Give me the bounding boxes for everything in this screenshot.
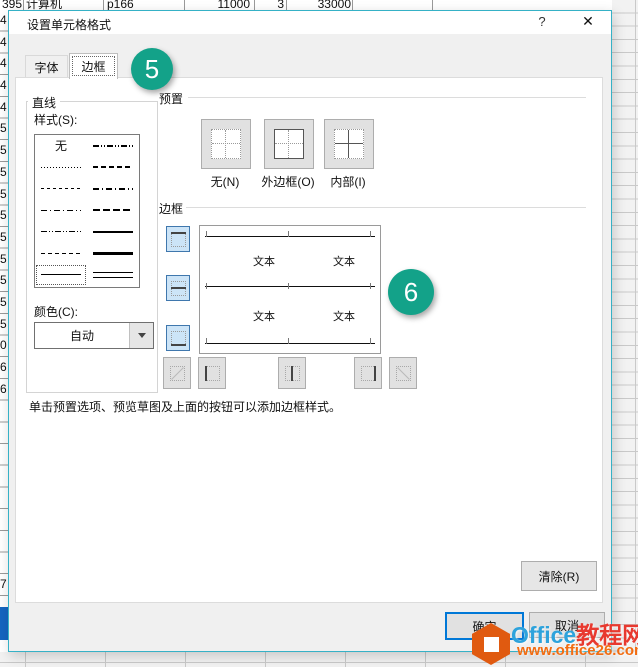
preview-border-line [205, 286, 375, 287]
cell-digit: 5 [0, 184, 7, 206]
cell-digit: 4 [0, 32, 7, 54]
line-style-option-selected[interactable] [35, 264, 87, 286]
tab-border[interactable]: 边框 [69, 53, 118, 79]
border-top-toggle[interactable] [166, 226, 190, 252]
cell-digit: 6 [0, 379, 7, 401]
gridline [345, 652, 346, 667]
preset-inside-icon [334, 129, 364, 159]
gridline [0, 662, 638, 663]
line-sample [41, 231, 81, 232]
cell-digit: 5 [0, 292, 7, 314]
cell-digit [0, 444, 7, 466]
gridline [105, 652, 106, 667]
cell-value: p166 [107, 0, 134, 10]
anchor-tick [206, 338, 207, 344]
border-diagonal-down-button[interactable] [389, 357, 417, 389]
line-style-option[interactable] [87, 264, 139, 286]
line-sample [93, 145, 133, 147]
line-sample [93, 231, 133, 233]
line-style-option[interactable] [35, 157, 87, 179]
gridline [265, 652, 266, 667]
line-sample [93, 209, 133, 211]
group-separator [188, 97, 586, 98]
preset-outline-label: 外边框(O) [255, 173, 321, 190]
border-middle-icon [171, 281, 186, 296]
line-sample [93, 272, 133, 278]
line-style-label: 样式(S): [34, 111, 77, 128]
line-style-option[interactable] [35, 243, 87, 265]
anchor-tick [206, 283, 207, 289]
line-sample [41, 210, 81, 211]
cell-value: 395 [0, 0, 22, 10]
cell-digit [0, 531, 7, 553]
preset-none-label: 无(N) [192, 173, 258, 190]
annotation-step-6-badge: 6 [388, 269, 434, 315]
line-style-option[interactable] [87, 243, 139, 265]
anchor-tick [288, 283, 289, 289]
gridline [103, 0, 104, 10]
line-group-title: 直线 [28, 94, 60, 111]
preset-inside-button[interactable] [324, 119, 374, 169]
clear-button[interactable]: 清除(R) [521, 561, 597, 591]
dropdown-button[interactable] [129, 323, 153, 348]
cell-digit: 4 [0, 75, 7, 97]
cell-value: 计算机 [26, 0, 62, 10]
cell-digit [0, 509, 7, 531]
cell-digit: 5 [0, 118, 7, 140]
cell-digit: 0 [0, 335, 7, 357]
cell-digit [0, 552, 7, 574]
line-sample [93, 188, 133, 190]
preview-text: 文本 [244, 308, 284, 324]
gridline [185, 652, 186, 667]
line-style-option[interactable] [35, 221, 87, 243]
cell-digit [0, 400, 7, 422]
cell-value: 33000 [288, 0, 351, 10]
preview-text: 文本 [324, 253, 364, 269]
gridline [184, 0, 185, 10]
anchor-tick [288, 231, 289, 237]
preset-none-button[interactable] [201, 119, 251, 169]
cell-digit: 5 [0, 140, 7, 162]
line-style-option[interactable] [35, 178, 87, 200]
line-style-option[interactable] [87, 135, 139, 157]
line-style-listbox[interactable]: 无 [34, 134, 140, 288]
anchor-tick [370, 338, 371, 344]
cell-digit: 5 [0, 205, 7, 227]
border-diagonal-up-button[interactable] [163, 357, 191, 389]
preview-text: 文本 [324, 308, 364, 324]
selected-cells-block [0, 607, 8, 640]
line-style-option-none[interactable]: 无 [35, 135, 87, 157]
line-style-option[interactable] [35, 200, 87, 222]
preview-border-line [205, 343, 375, 344]
tab-font[interactable]: 字体 [25, 55, 68, 79]
cell-digit [0, 487, 7, 509]
help-button[interactable]: ? [531, 14, 553, 32]
line-style-option[interactable] [87, 221, 139, 243]
hint-text: 单击预置选项、预览草图及上面的按钮可以添加边框样式。 [29, 398, 341, 415]
spreadsheet-left-strip: 4 4 4 4 4 5 5 5 5 5 5 5 5 5 5 0 6 6 7 [0, 10, 8, 652]
color-dropdown-value: 自动 [35, 323, 129, 348]
dialog-titlebar[interactable]: 设置单元格格式 ? ✕ [9, 11, 611, 34]
format-cells-dialog: 设置单元格格式 ? ✕ 字体 边框 直线 样式(S): 无 [8, 10, 612, 652]
preset-outline-icon [274, 129, 304, 159]
line-sample [93, 252, 133, 255]
group-separator [186, 207, 586, 208]
border-tab-page: 直线 样式(S): 无 [15, 77, 603, 603]
border-right-button[interactable] [354, 357, 382, 389]
gridline [352, 0, 353, 10]
cell-digit [0, 465, 7, 487]
line-sample [41, 253, 81, 254]
gridline [425, 652, 426, 667]
preview-border-line [205, 236, 375, 237]
diagonal-up-icon [170, 366, 185, 381]
left-cell-digits: 4 4 4 4 4 5 5 5 5 5 5 5 5 5 5 0 6 6 7 [0, 10, 7, 617]
border-middle-toggle[interactable] [166, 275, 190, 301]
annotation-step-5-badge: 5 [131, 48, 173, 90]
cell-digit: 5 [0, 270, 7, 292]
border-bottom-icon [171, 331, 186, 346]
line-style-option[interactable] [87, 178, 139, 200]
line-sample [41, 274, 81, 275]
preset-outline-button[interactable] [264, 119, 314, 169]
cell-digit [0, 422, 7, 444]
border-left-button[interactable] [198, 357, 226, 389]
cell-value: 3 [258, 0, 284, 10]
gridline [25, 652, 26, 667]
line-sample [41, 188, 81, 189]
border-preview[interactable]: 文本 文本 文本 文本 [199, 225, 381, 354]
anchor-tick [370, 231, 371, 237]
preset-inside-label: 内部(I) [315, 173, 381, 190]
line-style-option[interactable] [87, 157, 139, 179]
border-inner-vertical-button[interactable] [278, 357, 306, 389]
spreadsheet-top-row: 395 计算机 p166 11000 3 33000 [0, 0, 638, 10]
cell-digit: 5 [0, 249, 7, 271]
border-bottom-toggle[interactable] [166, 325, 190, 351]
anchor-tick [370, 283, 371, 289]
cell-digit: 5 [0, 227, 7, 249]
presets-group-title: 预置 [159, 90, 183, 107]
cell-digit: 7 [0, 574, 7, 596]
close-icon[interactable]: ✕ [575, 13, 601, 33]
cell-digit: 4 [0, 10, 7, 32]
cell-digit: 4 [0, 97, 7, 119]
gridline [635, 0, 636, 667]
cell-digit: 5 [0, 314, 7, 336]
border-right-icon [361, 366, 376, 381]
border-inner-vertical-icon [285, 366, 300, 381]
border-top-icon [171, 232, 186, 247]
cell-digit: 5 [0, 162, 7, 184]
none-option-label: 无 [55, 137, 67, 154]
border-group-title: 边框 [159, 200, 183, 217]
dialog-title: 设置单元格格式 [27, 16, 111, 33]
cell-digit: 6 [0, 357, 7, 379]
cell-digit: 4 [0, 53, 7, 75]
office-logo-hole [484, 637, 499, 652]
line-style-option[interactable] [87, 200, 139, 222]
color-dropdown[interactable]: 自动 [34, 322, 154, 349]
gridline [286, 0, 287, 10]
preview-text: 文本 [244, 253, 284, 269]
chevron-down-icon [138, 333, 146, 338]
line-sample [41, 167, 81, 168]
anchor-tick [288, 338, 289, 344]
gridline [432, 0, 433, 10]
gridline [254, 0, 255, 10]
spreadsheet-right-strip [612, 0, 638, 667]
cell-value: 11000 [186, 0, 250, 10]
watermark-url: www.office26.com [517, 642, 638, 659]
border-left-icon [205, 366, 220, 381]
color-label: 颜色(C): [34, 303, 78, 320]
gridline [23, 0, 24, 10]
anchor-tick [206, 231, 207, 237]
diagonal-down-icon [396, 366, 411, 381]
preset-none-icon [211, 129, 241, 159]
line-sample [93, 166, 133, 168]
